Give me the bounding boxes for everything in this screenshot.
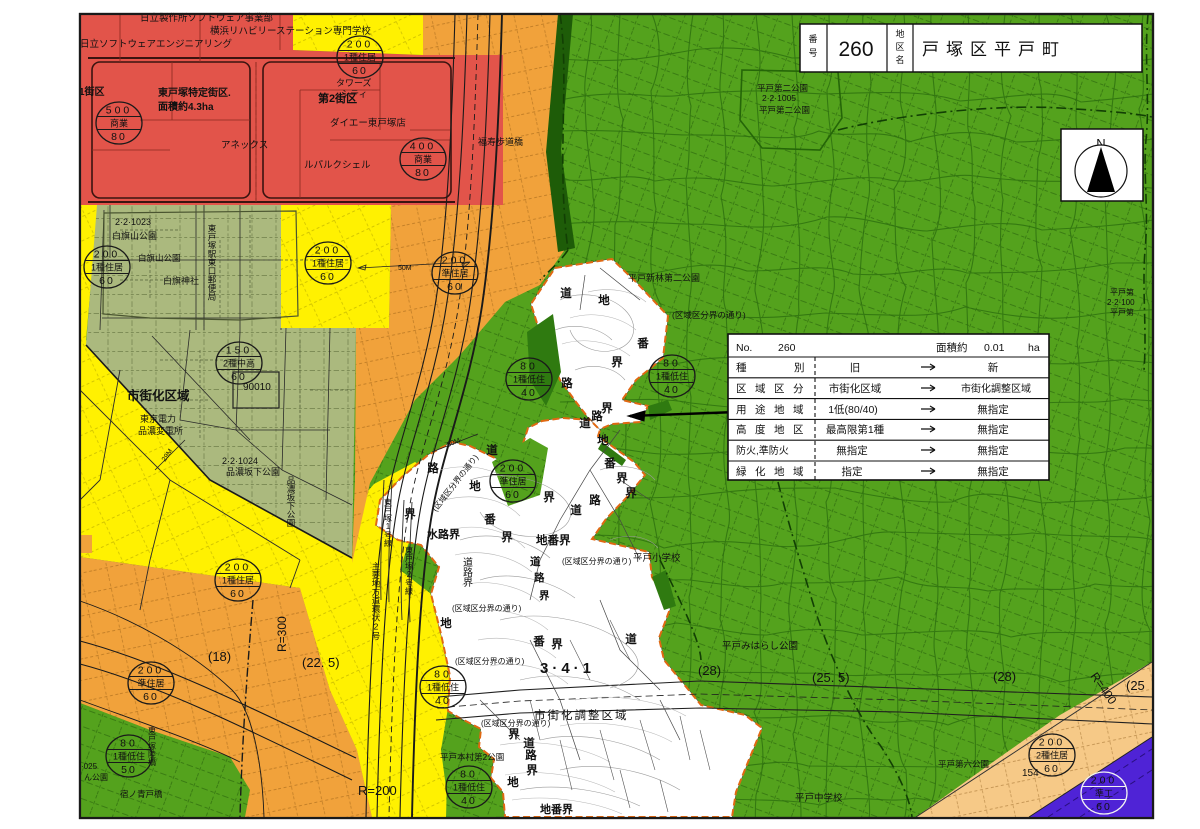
svg-text:地: 地 bbox=[469, 479, 481, 493]
svg-text:準工: 準工 bbox=[1095, 788, 1113, 799]
svg-text:地: 地 bbox=[507, 775, 519, 789]
svg-text:道: 道 bbox=[486, 443, 498, 457]
svg-text:平戸みはらし公園: 平戸みはらし公園 bbox=[722, 641, 798, 652]
svg-text:80: 80 bbox=[415, 167, 431, 179]
svg-text:道: 道 bbox=[523, 736, 535, 750]
svg-text:東戸塚特定街区.: 東戸塚特定街区. bbox=[158, 86, 231, 99]
svg-text:2種中高: 2種中高 bbox=[223, 358, 255, 369]
svg-text:60: 60 bbox=[99, 275, 115, 287]
svg-text:·025: ·025 bbox=[81, 762, 98, 771]
svg-text:番: 番 bbox=[532, 634, 545, 648]
svg-text:(区域区分界の通り): (区域区分界の通り) bbox=[452, 603, 522, 613]
svg-text:無指定: 無指定 bbox=[977, 423, 1009, 436]
svg-text:福寿歩道橋: 福寿歩道橋 bbox=[478, 136, 523, 147]
svg-text:60: 60 bbox=[320, 271, 336, 283]
svg-text:新: 新 bbox=[988, 361, 999, 374]
svg-text:路: 路 bbox=[525, 748, 537, 762]
svg-text:路: 路 bbox=[591, 409, 603, 423]
svg-text:1種低住: 1種低住 bbox=[113, 751, 145, 762]
svg-text:1種低住: 1種低住 bbox=[656, 371, 688, 382]
svg-text:高: 高 bbox=[736, 423, 747, 436]
svg-text:平戸第: 平戸第 bbox=[1110, 287, 1134, 297]
svg-text:(18): (18) bbox=[208, 649, 231, 664]
svg-text:種: 種 bbox=[736, 361, 747, 374]
svg-text:2·2·1024: 2·2·1024 bbox=[222, 456, 258, 466]
svg-text:50M: 50M bbox=[398, 265, 412, 272]
svg-text:1種住居: 1種住居 bbox=[222, 575, 254, 586]
svg-text:道: 道 bbox=[579, 416, 591, 430]
svg-text:番: 番 bbox=[808, 33, 817, 44]
svg-text:域: 域 bbox=[755, 382, 766, 395]
svg-text:ルパルクシェル: ルパルクシェル bbox=[304, 160, 371, 171]
svg-text:シティ: シティ bbox=[341, 89, 367, 99]
svg-text:R=300: R=300 bbox=[275, 616, 289, 652]
svg-text:200: 200 bbox=[500, 463, 527, 475]
svg-text:タワーズ: タワーズ bbox=[336, 77, 372, 88]
svg-text:200: 200 bbox=[225, 562, 252, 574]
svg-text:80: 80 bbox=[111, 131, 127, 143]
svg-text:40: 40 bbox=[521, 387, 537, 399]
svg-text:面積約: 面積約 bbox=[936, 341, 968, 354]
svg-text:0.01: 0.01 bbox=[984, 342, 1005, 354]
svg-text:(28): (28) bbox=[698, 663, 721, 678]
svg-text:白旗山公園: 白旗山公園 bbox=[138, 253, 181, 263]
svg-text:界: 界 bbox=[601, 402, 613, 415]
svg-text:2種住居: 2種住居 bbox=[1036, 750, 1068, 761]
svg-text:1低(80/40): 1低(80/40) bbox=[828, 403, 878, 416]
svg-text:60: 60 bbox=[230, 588, 246, 600]
svg-text:平戸第六公園: 平戸第六公園 bbox=[938, 759, 989, 769]
svg-text:1街区: 1街区 bbox=[79, 85, 105, 98]
svg-text:No.: No. bbox=[736, 342, 752, 354]
svg-text:260: 260 bbox=[778, 342, 796, 354]
svg-text:平戸第: 平戸第 bbox=[1110, 307, 1134, 317]
svg-text:平戸第二公園: 平戸第二公園 bbox=[759, 105, 810, 115]
svg-text:無指定: 無指定 bbox=[836, 444, 868, 457]
svg-text:平戸小学校: 平戸小学校 bbox=[633, 552, 681, 564]
svg-text:準住居: 準住居 bbox=[441, 268, 468, 279]
svg-text:路: 路 bbox=[534, 571, 545, 584]
svg-text:指定: 指定 bbox=[842, 465, 863, 478]
svg-text:域: 域 bbox=[793, 403, 804, 416]
svg-text:地: 地 bbox=[774, 465, 785, 478]
svg-text:200: 200 bbox=[315, 245, 342, 257]
svg-text:東戸塚駅東口郵便局: 東戸塚駅東口郵便局 bbox=[207, 223, 217, 301]
svg-text:戸塚区平戸町: 戸塚区平戸町 bbox=[922, 40, 1066, 59]
svg-text:90010: 90010 bbox=[243, 382, 271, 393]
svg-text:東京電力: 東京電力 bbox=[140, 413, 176, 424]
svg-text:界: 界 bbox=[404, 508, 416, 521]
svg-text:水路界: 水路界 bbox=[427, 527, 460, 541]
svg-text:品濃変電所: 品濃変電所 bbox=[138, 425, 183, 436]
svg-text:白旗神社: 白旗神社 bbox=[163, 275, 199, 286]
svg-text:度: 度 bbox=[755, 423, 766, 436]
svg-text:界: 界 bbox=[526, 764, 538, 777]
svg-text:2·2·100: 2·2·100 bbox=[1107, 298, 1135, 307]
svg-text:市街化区域: 市街化区域 bbox=[127, 388, 190, 403]
svg-text:60: 60 bbox=[1044, 763, 1060, 775]
svg-text:1種低住: 1種低住 bbox=[427, 682, 459, 693]
svg-text:60: 60 bbox=[447, 281, 463, 293]
svg-text:60: 60 bbox=[143, 691, 159, 703]
svg-text:道: 道 bbox=[625, 632, 637, 646]
svg-text:域: 域 bbox=[793, 465, 804, 478]
svg-text:番: 番 bbox=[483, 512, 496, 526]
svg-text:地: 地 bbox=[598, 293, 610, 307]
svg-text:界: 界 bbox=[508, 728, 520, 741]
svg-text:地: 地 bbox=[440, 616, 452, 630]
svg-text:市街化調整区域: 市街化調整区域 bbox=[961, 382, 1031, 395]
svg-text:R=200: R=200 bbox=[358, 783, 397, 798]
svg-text:道路界: 道路界 bbox=[461, 556, 473, 588]
svg-text:200: 200 bbox=[94, 249, 121, 261]
svg-text:区: 区 bbox=[736, 383, 747, 395]
svg-text:80: 80 bbox=[460, 769, 478, 781]
svg-text:200: 200 bbox=[1091, 775, 1118, 787]
svg-text:界: 界 bbox=[616, 472, 628, 485]
svg-text:品濃坂下公園: 品濃坂下公園 bbox=[226, 466, 280, 477]
svg-text:1種住居: 1種住居 bbox=[312, 258, 344, 269]
svg-text:80: 80 bbox=[663, 358, 681, 370]
svg-text:無指定: 無指定 bbox=[977, 444, 1009, 457]
svg-text:緑: 緑 bbox=[736, 465, 747, 478]
svg-text:番: 番 bbox=[603, 456, 616, 470]
svg-text:界: 界 bbox=[551, 638, 563, 651]
svg-text:道: 道 bbox=[560, 286, 572, 300]
svg-text:主要地方道環状2号: 主要地方道環状2号 bbox=[371, 561, 381, 641]
svg-text:40: 40 bbox=[435, 695, 451, 707]
svg-text:ダイエー東戸塚店: ダイエー東戸塚店 bbox=[330, 117, 406, 129]
svg-text:番: 番 bbox=[636, 336, 649, 350]
svg-text:400: 400 bbox=[410, 141, 437, 153]
svg-text:200: 200 bbox=[138, 665, 165, 677]
svg-text:50: 50 bbox=[121, 764, 137, 776]
svg-text:界: 界 bbox=[543, 491, 555, 504]
svg-text:日立ソフトウェアエンジニアリング: 日立ソフトウェアエンジニアリング bbox=[80, 38, 233, 50]
svg-text:無指定: 無指定 bbox=[977, 403, 1009, 416]
svg-text:平戸第二公園: 平戸第二公園 bbox=[757, 83, 808, 93]
svg-text:80: 80 bbox=[120, 738, 138, 750]
svg-text:60: 60 bbox=[1096, 801, 1112, 813]
svg-text:アネックス: アネックス bbox=[221, 140, 268, 151]
svg-text:ha: ha bbox=[1028, 342, 1040, 354]
svg-text:路: 路 bbox=[561, 376, 573, 390]
svg-text:平戸本村第2公園: 平戸本村第2公園 bbox=[440, 752, 504, 762]
svg-text:ん公園: ん公園 bbox=[84, 773, 108, 782]
svg-text:途: 途 bbox=[755, 403, 766, 416]
svg-text:平戸新林第二公園: 平戸新林第二公園 bbox=[628, 272, 700, 283]
svg-text:準住居: 準住居 bbox=[137, 678, 164, 689]
svg-text:地: 地 bbox=[774, 403, 785, 416]
svg-text:無指定: 無指定 bbox=[977, 465, 1009, 478]
svg-text:路: 路 bbox=[589, 493, 601, 507]
svg-text:2·2·1023: 2·2·1023 bbox=[115, 217, 151, 227]
svg-text:地: 地 bbox=[597, 433, 609, 447]
svg-text:界: 界 bbox=[501, 531, 513, 544]
svg-text:路: 路 bbox=[427, 461, 439, 475]
svg-text:面積約4.3ha: 面積約4.3ha bbox=[158, 100, 214, 113]
svg-text:150: 150 bbox=[226, 345, 253, 357]
svg-text:地番界: 地番界 bbox=[540, 802, 573, 816]
svg-text:界: 界 bbox=[625, 487, 637, 500]
svg-text:260: 260 bbox=[838, 38, 873, 61]
svg-text:40: 40 bbox=[461, 795, 477, 807]
svg-text:東戸塚陸橋: 東戸塚陸橋 bbox=[148, 725, 157, 767]
svg-text:(区域区分界の通り): (区域区分界の通り) bbox=[672, 310, 746, 320]
svg-text:3·4·1: 3·4·1 bbox=[540, 660, 595, 677]
svg-text:市街化区域: 市街化区域 bbox=[829, 382, 882, 395]
svg-text:地: 地 bbox=[774, 423, 785, 436]
svg-text:東戸塚2号線: 東戸塚2号線 bbox=[405, 545, 414, 595]
svg-text:1種住居: 1種住居 bbox=[91, 262, 123, 273]
svg-text:分: 分 bbox=[793, 383, 804, 395]
svg-text:区: 区 bbox=[774, 383, 785, 395]
svg-text:(区域区分界の通り): (区域区分界の通り) bbox=[481, 718, 551, 728]
svg-text:200: 200 bbox=[442, 255, 469, 267]
svg-text:旧: 旧 bbox=[850, 362, 861, 374]
svg-text:1種低住: 1種低住 bbox=[453, 782, 485, 793]
svg-text:東戸塚1号線: 東戸塚1号線 bbox=[384, 497, 393, 547]
svg-text:(25: (25 bbox=[1126, 678, 1145, 693]
svg-text:防火,準防火: 防火,準防火 bbox=[736, 444, 789, 457]
svg-text:地番界: 地番界 bbox=[536, 533, 571, 547]
svg-text:80: 80 bbox=[434, 669, 452, 681]
svg-text:界: 界 bbox=[611, 356, 623, 369]
svg-text:60: 60 bbox=[352, 65, 368, 77]
svg-text:区: 区 bbox=[793, 424, 804, 436]
svg-text:名: 名 bbox=[895, 54, 904, 65]
svg-text:(区域区分界の通り): (区域区分界の通り) bbox=[562, 556, 632, 566]
svg-text:(28): (28) bbox=[993, 669, 1016, 684]
svg-text:500: 500 bbox=[106, 105, 133, 117]
svg-text:60: 60 bbox=[505, 489, 521, 501]
svg-text:(25. 5): (25. 5) bbox=[812, 670, 850, 685]
svg-text:化: 化 bbox=[755, 465, 766, 478]
svg-text:平戸中学校: 平戸中学校 bbox=[795, 792, 843, 804]
svg-text:品濃坂下公園: 品濃坂下公園 bbox=[286, 476, 296, 528]
svg-text:1種低住: 1種低住 bbox=[513, 374, 545, 385]
svg-text:200: 200 bbox=[347, 39, 374, 51]
svg-text:横浜リハビリーステーション専門学校: 横浜リハビリーステーション専門学校 bbox=[210, 25, 371, 37]
svg-text:商業: 商業 bbox=[414, 154, 432, 165]
svg-text:(22. 5): (22. 5) bbox=[302, 655, 340, 670]
svg-text:200: 200 bbox=[1039, 737, 1066, 749]
svg-text:1種住居: 1種住居 bbox=[344, 52, 376, 63]
svg-text:用: 用 bbox=[736, 404, 747, 416]
svg-text:2·2·1005: 2·2·1005 bbox=[762, 93, 796, 103]
svg-text:(区域区分界の通り): (区域区分界の通り) bbox=[455, 656, 525, 666]
svg-text:最高限第1種: 最高限第1種 bbox=[826, 423, 885, 436]
svg-text:154: 154 bbox=[1022, 768, 1039, 779]
svg-text:号: 号 bbox=[808, 48, 817, 58]
svg-text:道: 道 bbox=[570, 503, 582, 517]
svg-text:商業: 商業 bbox=[110, 118, 128, 129]
svg-text:40: 40 bbox=[664, 384, 680, 396]
svg-text:界: 界 bbox=[539, 590, 550, 602]
svg-text:地: 地 bbox=[895, 28, 904, 39]
svg-text:区: 区 bbox=[895, 42, 904, 52]
svg-text:白旗山公園: 白旗山公園 bbox=[112, 230, 157, 241]
svg-text:道: 道 bbox=[530, 555, 541, 568]
svg-text:宿ノ青戸橋: 宿ノ青戸橋 bbox=[120, 789, 163, 799]
svg-text:準住居: 準住居 bbox=[499, 476, 526, 487]
svg-text:80: 80 bbox=[520, 361, 538, 373]
svg-text:別: 別 bbox=[794, 362, 805, 374]
